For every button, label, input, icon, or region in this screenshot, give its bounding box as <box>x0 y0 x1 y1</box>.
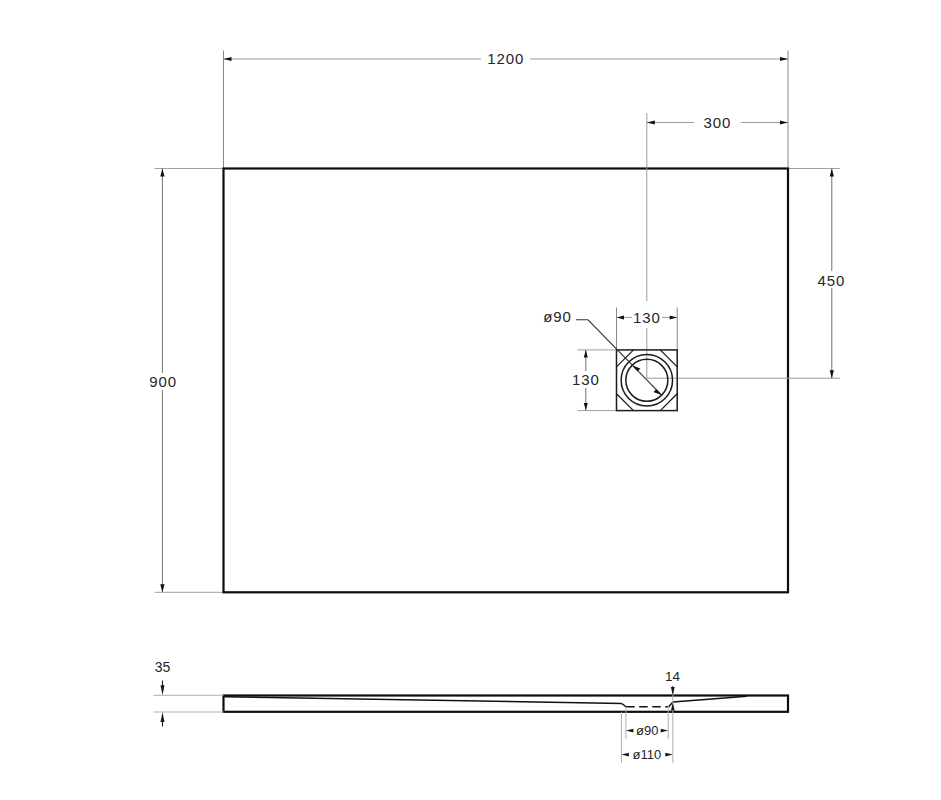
svg-text:ø90: ø90 <box>543 308 572 325</box>
svg-text:450: 450 <box>818 272 846 289</box>
svg-text:ø90: ø90 <box>636 723 658 738</box>
svg-text:300: 300 <box>704 114 732 131</box>
svg-text:14: 14 <box>665 669 681 684</box>
svg-text:35: 35 <box>155 659 171 675</box>
svg-text:1200: 1200 <box>487 50 524 67</box>
svg-text:900: 900 <box>149 373 177 390</box>
svg-text:ø110: ø110 <box>633 747 662 762</box>
svg-text:130: 130 <box>572 371 600 388</box>
svg-text:130: 130 <box>633 309 661 326</box>
